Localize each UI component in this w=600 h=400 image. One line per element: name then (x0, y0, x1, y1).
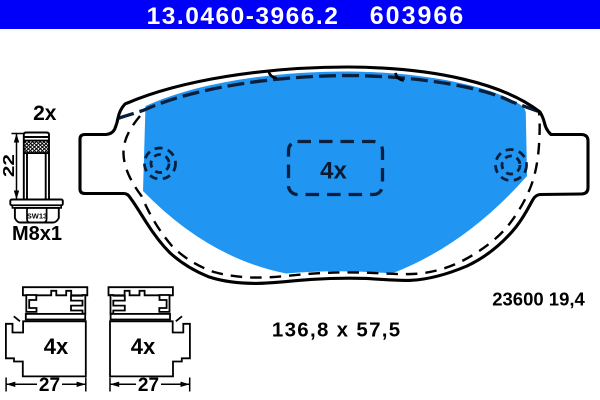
svg-text:13.0460-3966.2: 13.0460-3966.2 (147, 3, 340, 30)
svg-text:136,8 x 57,5: 136,8 x 57,5 (272, 319, 402, 342)
svg-text:27: 27 (39, 375, 60, 396)
svg-text:M8x1: M8x1 (12, 223, 62, 245)
svg-text:2x: 2x (33, 102, 57, 125)
svg-text:4x: 4x (320, 158, 347, 185)
svg-text:4x: 4x (44, 334, 69, 359)
svg-text:27: 27 (138, 375, 159, 396)
svg-text:22: 22 (1, 154, 18, 177)
svg-text:603966: 603966 (370, 2, 465, 30)
svg-text:4x: 4x (131, 334, 156, 359)
svg-text:23600 19,4: 23600 19,4 (492, 289, 585, 310)
svg-text:SW13: SW13 (27, 212, 47, 221)
